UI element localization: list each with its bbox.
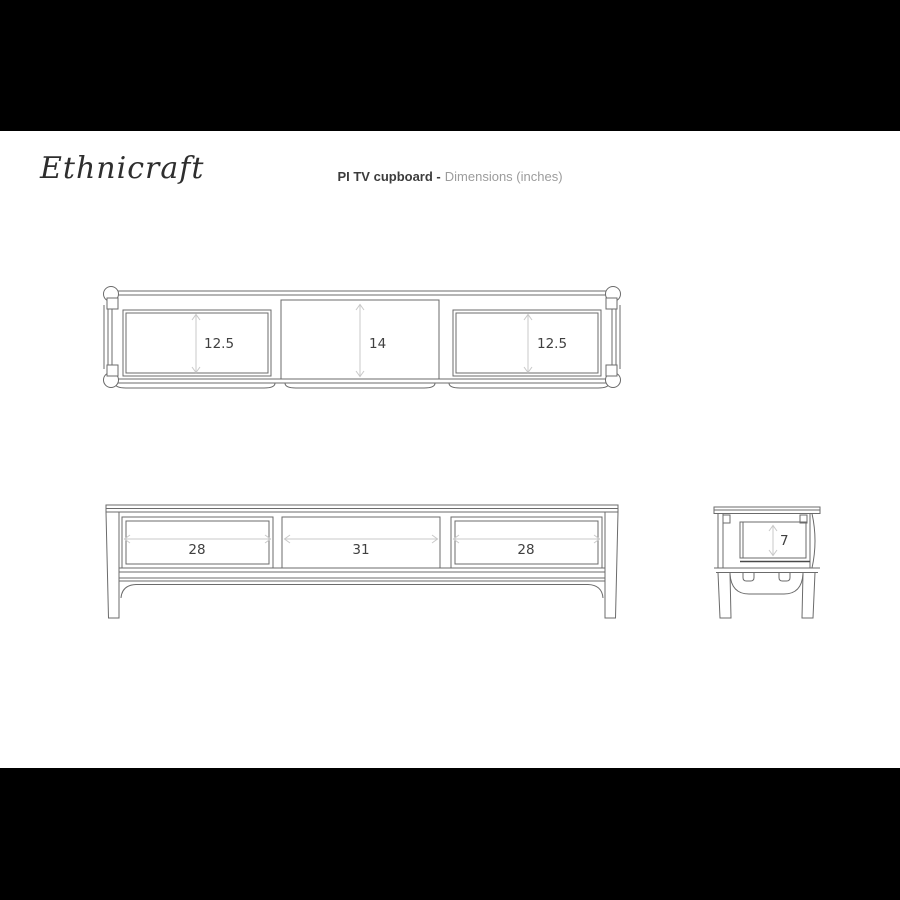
top-edge-profile-middle xyxy=(285,383,435,388)
dim-label-side-depth: 7 xyxy=(780,533,789,549)
dim-label-top-middle: 14 xyxy=(369,336,386,352)
top-left-drawer-inner xyxy=(126,313,268,373)
side-stretcher-tab xyxy=(779,573,790,582)
front-view: 28 31 28 xyxy=(106,505,618,618)
front-right-leg xyxy=(605,512,618,618)
side-bottom-rail xyxy=(714,568,820,573)
letterbox-top xyxy=(0,0,900,131)
top-edge-profile-left xyxy=(115,383,275,388)
side-back-curve xyxy=(812,514,815,569)
spec-sheet: Ethnicraft PI TV cupboard -Dimensions (i… xyxy=(0,131,900,768)
leg-post xyxy=(723,515,730,523)
dim-label-front-middle: 31 xyxy=(352,542,369,558)
leg-post xyxy=(606,365,617,376)
leg-post xyxy=(606,298,617,309)
side-stretcher-tab xyxy=(743,573,754,582)
leg-post xyxy=(107,298,118,309)
side-right-leg xyxy=(802,573,815,619)
top-edge-profile-right xyxy=(449,383,609,388)
side-left-leg xyxy=(718,573,731,619)
dim-label-front-right: 28 xyxy=(517,542,534,558)
dim-label-top-left: 12.5 xyxy=(204,336,234,352)
top-right-drawer-inner xyxy=(456,313,598,373)
side-front-edge xyxy=(718,514,723,569)
front-left-leg xyxy=(106,512,119,618)
dim-label-front-left: 28 xyxy=(188,542,205,558)
side-view: 7 xyxy=(714,507,820,618)
side-apron-curve xyxy=(730,574,803,594)
leg-post xyxy=(107,365,118,376)
top-left-drawer-outer xyxy=(123,310,271,376)
front-bottom-rail xyxy=(119,568,605,572)
dim-label-top-right: 12.5 xyxy=(537,336,567,352)
top-right-drawer-outer xyxy=(453,310,601,376)
drawing-canvas: 12.5 14 12.5 28 xyxy=(0,131,900,768)
front-apron-top xyxy=(119,578,605,581)
front-apron-curve xyxy=(121,585,603,599)
letterbox-bottom xyxy=(0,768,900,900)
top-view: 12.5 14 12.5 xyxy=(104,287,621,389)
